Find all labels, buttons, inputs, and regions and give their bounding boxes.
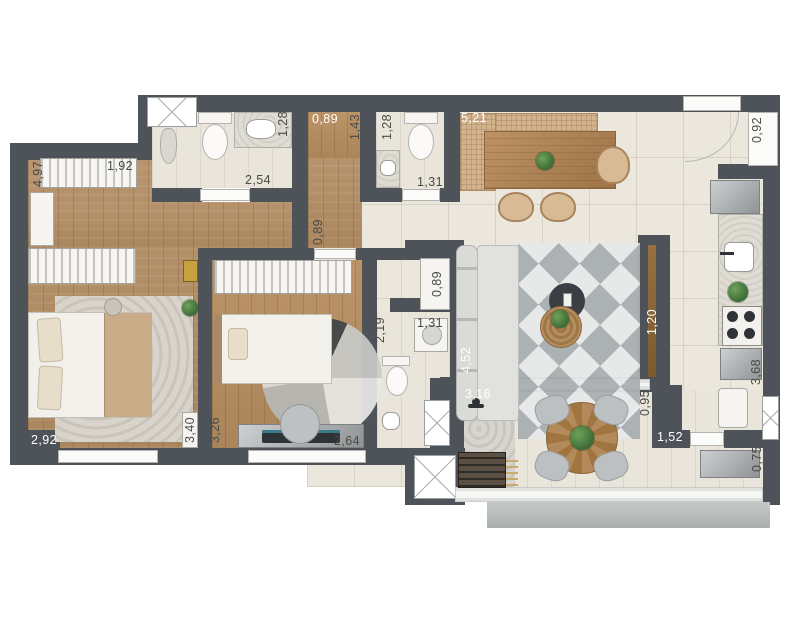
burner-1 — [727, 311, 738, 322]
master-vanity-sink — [246, 119, 276, 139]
dimension-label-balcony-left-width: 3,16 — [465, 387, 491, 401]
dining-chair-right — [596, 146, 630, 184]
master-closet-bottom — [28, 248, 136, 284]
wall-lavabo-bottom-b — [440, 188, 460, 202]
dining-table-plant — [536, 152, 554, 170]
dimension-label-suite-inner-length: 3,40 — [183, 417, 197, 443]
dimension-label-suite-length: 4,97 — [31, 161, 45, 187]
wall-lavabo-right — [444, 95, 460, 202]
wall-lavabo-left — [360, 95, 376, 202]
wall-lavabo-bottom-a — [374, 188, 402, 202]
barbecue-grill — [458, 452, 506, 488]
duct-shaft-bath2 — [424, 400, 450, 446]
desk-chair — [280, 404, 320, 444]
bath2-toilet-bowl — [386, 366, 408, 396]
bedroom2-closet — [214, 260, 352, 294]
bedroom2-headboard — [214, 314, 222, 384]
wall-bedroom2-top-a — [198, 248, 314, 260]
burner-2 — [744, 311, 755, 322]
dimension-label-bed2-width: 2,64 — [334, 434, 360, 448]
service-appliance — [718, 388, 748, 428]
grill-skewers — [506, 456, 518, 486]
floor-plan: 4,971,921,282,540,891,431,281,315,210,92… — [0, 0, 790, 624]
dimension-label-suite-width: 2,92 — [31, 433, 57, 447]
master-toilet-tank — [198, 112, 232, 124]
shower-towel — [160, 128, 177, 164]
master-bedroom-window — [58, 450, 158, 463]
dimension-label-bed2-length: 3,26 — [208, 417, 222, 443]
burner-4 — [744, 328, 755, 339]
fridge — [710, 180, 760, 214]
hall-picture-frame — [183, 260, 198, 282]
dimension-label-living-length: 4,52 — [459, 347, 473, 373]
dimension-label-kitchen-length: 3,68 — [749, 359, 763, 385]
bedroom2-door — [314, 249, 356, 259]
dimension-label-top-niche-width: 0,89 — [312, 112, 338, 126]
dimension-label-balcony-depth: 0,75 — [750, 446, 764, 472]
dimension-label-hall-width: 0,89 — [311, 219, 325, 245]
balcony-table-plant — [570, 426, 594, 450]
dimension-label-lavabo-width: 1,28 — [380, 114, 394, 140]
master-bed-throw — [104, 313, 152, 417]
dining-chair-bottom-1 — [498, 192, 534, 222]
remote-control — [563, 293, 572, 307]
dimension-label-bath2-length: 2,19 — [373, 317, 387, 343]
bedroom2-window — [248, 450, 366, 463]
dimension-label-suite-bath-width: 1,28 — [276, 111, 290, 137]
master-nightstand — [104, 298, 122, 316]
dimension-label-island-length: 1,20 — [645, 309, 659, 335]
master-bed-pillow-1 — [36, 317, 63, 363]
wall-kitchen-top-stub — [718, 164, 763, 179]
bath2-toilet-tank — [382, 356, 410, 366]
wall-bath1-bottom-b — [250, 188, 292, 202]
wicker-table-plant — [551, 310, 569, 328]
dimension-label-bath2-width: 1,31 — [417, 316, 443, 330]
master-cabinet — [30, 192, 54, 246]
lavabo-toilet-bowl — [408, 124, 434, 160]
burner-3 — [727, 328, 738, 339]
duct-shaft-top — [147, 97, 197, 127]
dimension-label-dining-length: 5,21 — [461, 111, 487, 125]
master-toilet-bowl — [202, 124, 228, 160]
master-bath-door — [200, 189, 250, 201]
dimension-label-laundry-niche: 0,89 — [430, 271, 444, 297]
duct-shaft-right — [762, 396, 779, 440]
dimension-label-kitchen-passage: 0,95 — [638, 390, 652, 416]
dimension-label-suite-bath-length: 2,54 — [245, 173, 271, 187]
lavabo-sink — [380, 160, 396, 176]
dimension-label-lavabo-length: 1,31 — [417, 175, 443, 189]
bedroom2-pillow — [228, 328, 248, 360]
kitchen-sink — [724, 242, 754, 272]
wall-bath1-bottom-a — [152, 188, 202, 202]
wall-kitchen-column — [652, 385, 682, 435]
master-plant — [182, 300, 198, 316]
dimension-label-suite-closet-width: 1,92 — [107, 159, 133, 173]
kitchen-faucet-icon — [720, 252, 734, 255]
dining-chair-bottom-2 — [540, 192, 576, 222]
hall-floor — [28, 202, 308, 248]
kitchen-plant — [728, 282, 748, 302]
lavabo-toilet-tank — [404, 112, 438, 124]
entry-door — [683, 96, 741, 111]
bath2-sink — [382, 412, 400, 430]
dimension-label-kitchen-opening: 1,52 — [657, 430, 683, 444]
wall-bath1-right — [292, 95, 308, 250]
wall-left — [10, 143, 28, 465]
balcony-glass-railing — [455, 487, 763, 502]
dimension-label-right-window: 0,92 — [750, 117, 764, 143]
lavabo-door — [402, 189, 440, 201]
duct-shaft-bottom — [414, 455, 456, 499]
exterior-ledge — [487, 502, 770, 528]
kitchen-service-door — [690, 432, 724, 446]
master-bed-pillow-2 — [37, 365, 63, 410]
dimension-label-top-niche-depth: 1,43 — [348, 114, 362, 140]
